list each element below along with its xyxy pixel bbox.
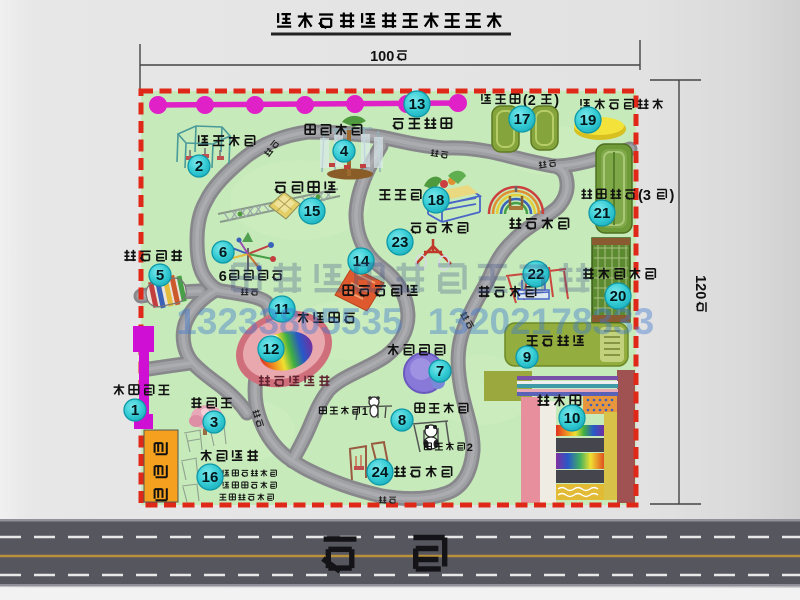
svg-text:10: 10 [564, 410, 581, 427]
svg-text:1: 1 [131, 402, 139, 419]
svg-text:24: 24 [372, 464, 389, 481]
svg-text:2: 2 [195, 158, 203, 175]
svg-text:13233805535: 13233805535 [176, 301, 402, 342]
svg-text:): ) [554, 93, 559, 109]
svg-text:17: 17 [514, 111, 531, 128]
svg-text:100: 100 [370, 49, 394, 65]
svg-text:3: 3 [210, 414, 218, 431]
svg-text:6: 6 [219, 244, 227, 261]
svg-text:5: 5 [156, 267, 164, 284]
svg-text:13202178333: 13202178333 [428, 301, 654, 342]
svg-text:18: 18 [428, 192, 445, 209]
svg-text:6: 6 [219, 269, 227, 285]
svg-text:1: 1 [362, 406, 368, 418]
svg-text:16: 16 [202, 469, 219, 486]
svg-text:19: 19 [580, 112, 597, 129]
svg-text:13: 13 [409, 96, 426, 113]
svg-text:120: 120 [692, 275, 708, 299]
svg-text:23: 23 [392, 234, 409, 251]
svg-text:7: 7 [436, 363, 444, 380]
svg-text:9: 9 [523, 349, 531, 366]
svg-text:2: 2 [467, 442, 473, 454]
svg-text:4: 4 [340, 143, 349, 160]
svg-text:(3: (3 [638, 188, 651, 204]
svg-text:12: 12 [263, 341, 280, 358]
svg-text:8: 8 [398, 412, 406, 429]
svg-text:15: 15 [304, 203, 321, 220]
svg-text:): ) [670, 188, 675, 204]
svg-text:21: 21 [594, 205, 611, 222]
